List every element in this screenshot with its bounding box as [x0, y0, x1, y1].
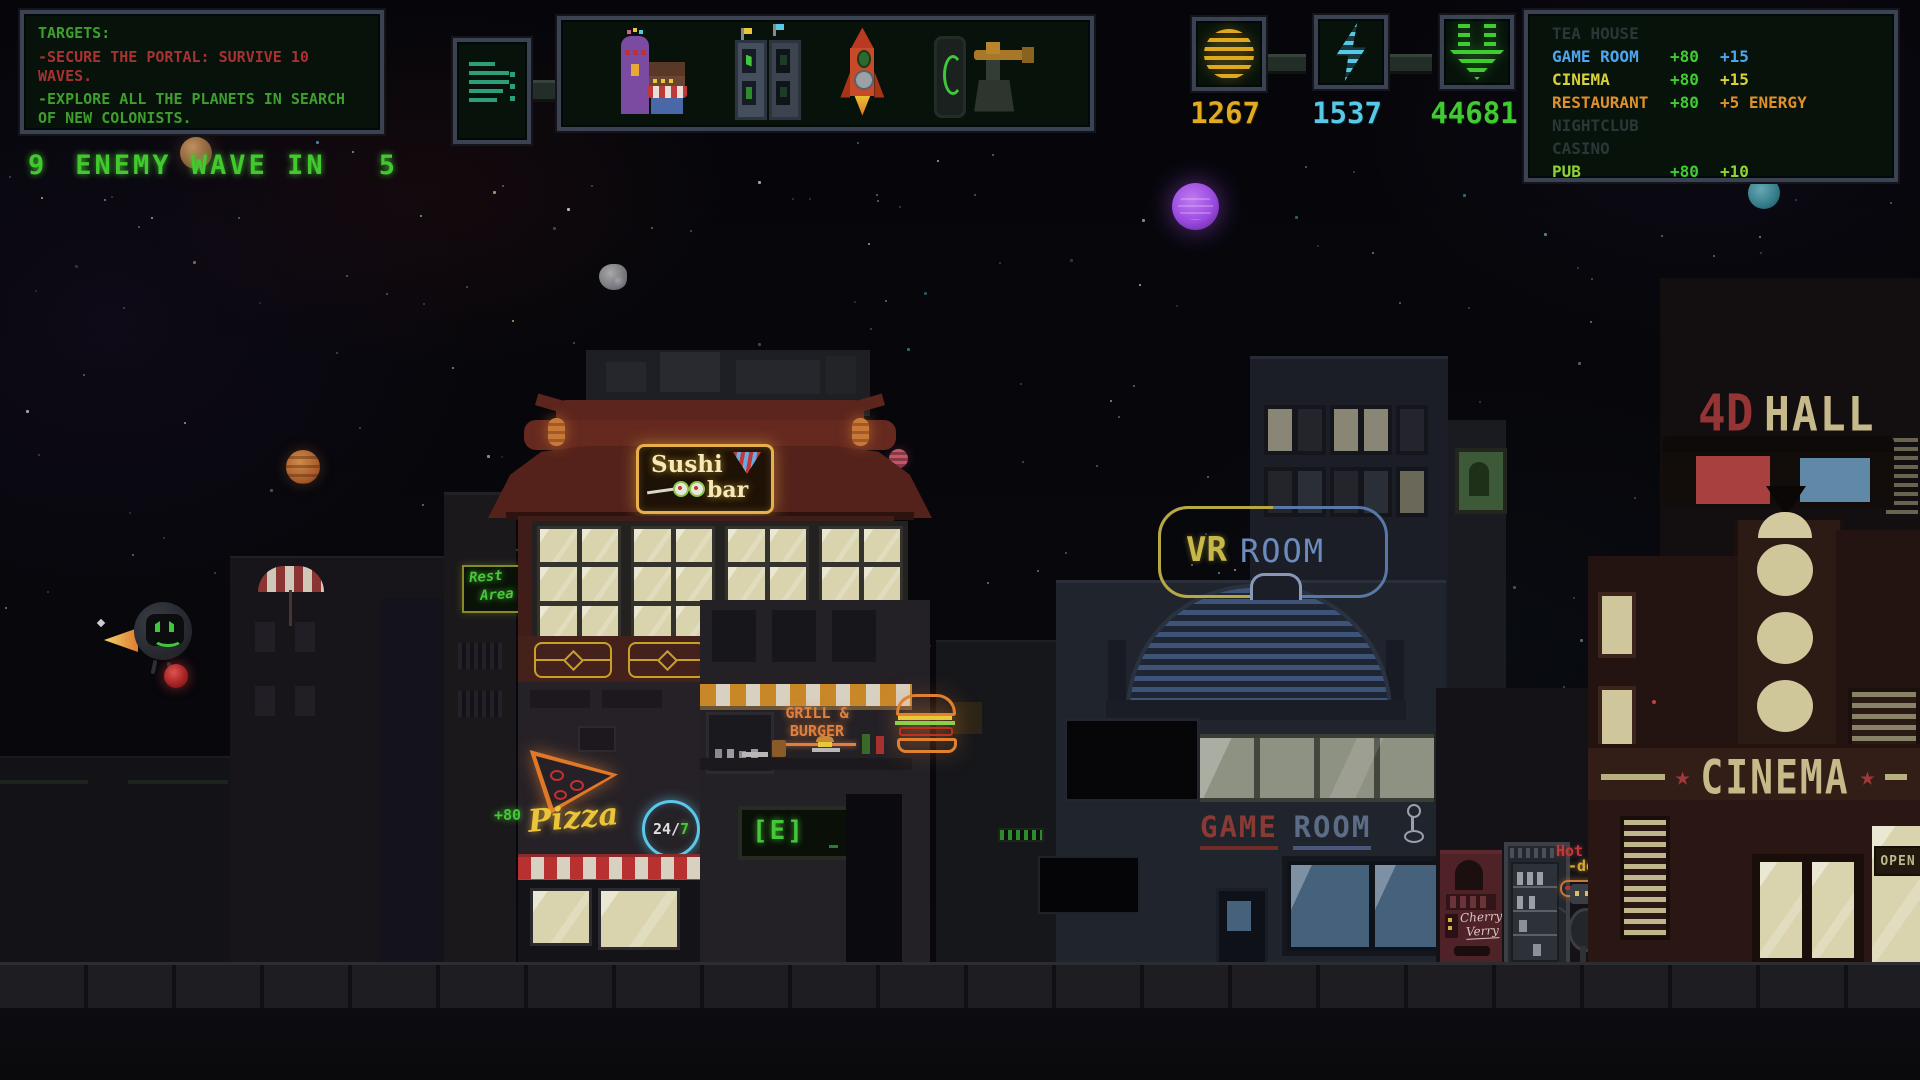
- game-room-sign: GAME ROOM: [1200, 810, 1430, 854]
- star: [870, 328, 872, 330]
- star: [591, 185, 593, 187]
- star: [1110, 400, 1112, 402]
- star: [857, 142, 859, 144]
- rest-area-line1: Rest: [468, 568, 503, 586]
- vr-sign-right: ROOM: [1240, 532, 1325, 570]
- mug: [772, 740, 786, 757]
- badge-24: 24/: [653, 820, 680, 838]
- star: [502, 185, 504, 187]
- pizza-storefront[interactable]: [518, 880, 702, 966]
- cinema-sign-text: CINEMA: [1700, 750, 1849, 805]
- sushi-bar-sign: Sushi bar: [636, 444, 774, 514]
- star: [792, 198, 794, 200]
- resource-bar: 1267 1537 44681: [1180, 0, 1540, 140]
- star: [924, 292, 927, 295]
- asteroid-chunk: [612, 276, 626, 288]
- star-icon: ★: [1860, 762, 1876, 792]
- star: [1022, 461, 1024, 463]
- energy-tile: [1314, 15, 1388, 89]
- star: [1513, 586, 1516, 589]
- star: [1353, 171, 1355, 173]
- game-room-storefront: [1282, 856, 1462, 956]
- star: [1372, 252, 1374, 254]
- star: [1070, 259, 1073, 262]
- cinema-lower-floor: OPEN: [1588, 800, 1920, 966]
- open-sign-text: OPEN: [1880, 854, 1915, 869]
- star: [1065, 552, 1067, 554]
- grill-burger-shop: GRILL & BURGER [E]: [700, 600, 930, 966]
- star: [163, 537, 165, 539]
- star: [885, 300, 887, 302]
- row-label: PUB: [1552, 162, 1581, 181]
- cinema-marquee: ★ CINEMA ★: [1588, 744, 1920, 806]
- star: [493, 191, 496, 194]
- wave-label: ENEMY WAVE IN: [75, 150, 378, 181]
- burger-bun: [816, 736, 834, 742]
- railing: [128, 780, 228, 784]
- paper-lantern: [548, 418, 565, 446]
- star: [1661, 235, 1663, 237]
- star: [151, 217, 153, 219]
- background-kiosk: [936, 640, 1056, 968]
- coins-value: 1267: [1180, 96, 1270, 130]
- star: [38, 454, 40, 456]
- star: [1577, 267, 1579, 269]
- build-menu-button[interactable]: [453, 38, 531, 144]
- build-menu-panel: TEA HOUSE GAME ROOM +80 +15 CINEMA +80 +…: [1524, 10, 1898, 182]
- income-value: 44681: [1426, 96, 1522, 130]
- star: [487, 455, 490, 458]
- star: [1295, 216, 1298, 219]
- star: [877, 200, 879, 202]
- badge-7: 7: [680, 820, 689, 838]
- blue-lens: [1800, 458, 1870, 502]
- interact-prompt: [E]: [752, 816, 805, 846]
- red-orb-pickup[interactable]: [164, 664, 188, 688]
- star: [336, 352, 338, 354]
- star: [567, 208, 570, 211]
- star: [690, 230, 692, 232]
- pizza-awning: [518, 854, 702, 883]
- row-label: RESTAURANT: [1552, 93, 1648, 112]
- row-bonus: +15: [1720, 70, 1749, 89]
- cinema-round-tower: [1734, 520, 1844, 770]
- star: [1795, 199, 1797, 201]
- build-row-nightclub[interactable]: NIGHTCLUB: [1528, 116, 1894, 139]
- star: [1544, 233, 1547, 236]
- wave-counter: 9 ENEMY WAVE IN 5: [28, 150, 398, 181]
- wave-count: 9: [28, 150, 47, 181]
- phone-turret-icon[interactable]: [928, 28, 1038, 120]
- objective-2: -EXPLORE ALL THE PLANETS IN SEARCH OF NE…: [38, 90, 366, 128]
- counter: [700, 758, 912, 770]
- vending-slot: [1454, 946, 1490, 956]
- row-bonus: +15: [1720, 47, 1749, 66]
- green-lit-window: [1455, 448, 1507, 514]
- vent: [458, 643, 502, 669]
- star: [512, 320, 514, 322]
- objective-1: -SECURE THE PORTAL: SURVIVE 10 WAVES.: [38, 48, 366, 86]
- joystick-icon: [1402, 804, 1422, 844]
- star: [1118, 416, 1120, 418]
- star: [1759, 236, 1761, 238]
- star: [5, 607, 7, 609]
- shop-door[interactable]: [846, 794, 902, 966]
- star: [422, 504, 424, 506]
- star: [41, 197, 43, 199]
- burger-neon-sign: [894, 694, 956, 752]
- star: [1207, 476, 1209, 478]
- open-24-7-badge: 24/7: [642, 800, 700, 858]
- star: [1713, 255, 1715, 257]
- vending-keypad[interactable]: [1445, 914, 1458, 938]
- star: [259, 302, 261, 304]
- energy-value: 1537: [1302, 96, 1392, 130]
- shop-buildings-icon[interactable]: [613, 28, 689, 120]
- star: [809, 198, 811, 200]
- star: [1463, 194, 1466, 197]
- targets-panel: TARGETS: -SECURE THE PORTAL: SURVIVE 10 …: [20, 10, 384, 134]
- billboard-screen: [1064, 718, 1200, 802]
- star: [1468, 307, 1470, 309]
- row-label: CINEMA: [1552, 70, 1610, 89]
- game-sign-right: ROOM: [1293, 810, 1371, 850]
- star: [1133, 385, 1135, 387]
- star: [1591, 278, 1593, 280]
- led-ticker: [998, 828, 1044, 842]
- star: [1890, 202, 1892, 204]
- road: [0, 1008, 1920, 1080]
- rest-area-tower: Rest Area: [444, 492, 516, 969]
- star: [316, 141, 319, 144]
- star: [1634, 497, 1636, 499]
- build-row-tea-house[interactable]: TEA HOUSE: [1528, 24, 1894, 47]
- star: [1317, 245, 1319, 247]
- blinds-window: [1620, 816, 1670, 940]
- row-bonus: +5 ENERGY: [1720, 93, 1807, 112]
- open-sign: OPEN: [1874, 846, 1920, 876]
- star: [111, 196, 113, 198]
- background-building-far-left: [0, 756, 232, 968]
- sushi-sign-line1: Sushi: [651, 451, 723, 478]
- star: [386, 293, 388, 295]
- star: [83, 374, 85, 376]
- sidewalk: [0, 962, 1920, 1011]
- star: [138, 226, 140, 228]
- income-tile: [1440, 15, 1514, 89]
- download-arrows-icon: [1450, 24, 1504, 80]
- star: [346, 275, 348, 277]
- star: [193, 261, 196, 264]
- star: [1578, 362, 1581, 365]
- row-cost: +80: [1670, 47, 1699, 66]
- star: [1139, 284, 1141, 286]
- star: [1096, 465, 1098, 467]
- star: [758, 181, 761, 184]
- cinema-entrance[interactable]: [1752, 854, 1864, 966]
- hall-4d-name: HALL: [1764, 388, 1876, 443]
- game-viewport: Rest Area Sushi bar: [0, 0, 1920, 1080]
- star: [359, 427, 361, 429]
- plate: [812, 748, 840, 752]
- rocket-icon[interactable]: [840, 28, 884, 120]
- star: [420, 215, 422, 217]
- star: [47, 591, 49, 593]
- build-toolbar: [557, 16, 1094, 131]
- build-row-pub[interactable]: PUB +80 +10: [1528, 162, 1894, 185]
- cherry-vending-machine[interactable]: Cherry Verry: [1440, 850, 1502, 970]
- paper-lantern: [852, 418, 869, 446]
- dome-base: [1106, 700, 1406, 720]
- star: [466, 286, 468, 288]
- game-room-door[interactable]: [1216, 888, 1268, 972]
- row-label: TEA HOUSE: [1552, 24, 1639, 43]
- sushi-sign-line2: bar: [707, 477, 748, 503]
- star: [868, 243, 870, 245]
- vent: [458, 691, 502, 717]
- star: [423, 303, 425, 305]
- star: [651, 227, 653, 229]
- small-screen: [1038, 856, 1140, 914]
- star: [1399, 302, 1401, 304]
- star: [1573, 597, 1575, 599]
- vr-room-sign: VR ROOM: [1158, 506, 1388, 598]
- star: [238, 217, 240, 219]
- row-cost: +80: [1670, 93, 1699, 112]
- star: [907, 348, 910, 351]
- hall-4d-prefix: 4D: [1698, 383, 1753, 442]
- row-label: NIGHTCLUB: [1552, 116, 1639, 135]
- grill-burger-sign: GRILL & BURGER: [774, 704, 860, 750]
- star: [1479, 401, 1481, 403]
- hooded-figure: [1469, 462, 1489, 496]
- grill-line1: GRILL &: [774, 704, 860, 722]
- star: [270, 489, 273, 492]
- star: [899, 206, 901, 208]
- interact-led-board: [E]: [738, 806, 850, 860]
- planet-orange[interactable]: [286, 450, 320, 484]
- star: [1142, 219, 1145, 222]
- umbrella-pole: [289, 590, 292, 626]
- game-sign-left: GAME: [1200, 810, 1278, 850]
- sushi-roll-icon: [689, 481, 705, 497]
- star: [123, 307, 125, 309]
- coin-icon: [1204, 29, 1254, 79]
- machines-icon[interactable]: [733, 28, 797, 120]
- cherry-sign-line2: Verry: [1466, 923, 1500, 940]
- star-icon: ★: [1675, 762, 1691, 792]
- rest-area-line2: Area: [479, 586, 514, 604]
- hud-pipe: [527, 80, 559, 102]
- row-label: CASINO: [1552, 139, 1610, 158]
- fan-icon: [733, 452, 761, 474]
- vr-sign-left: VR: [1186, 530, 1227, 570]
- ketchup-bottle: [876, 736, 884, 754]
- coins-tile: [1192, 17, 1266, 91]
- star: [452, 367, 454, 369]
- star: [974, 194, 976, 196]
- star: [1305, 166, 1307, 168]
- star: [992, 154, 994, 156]
- star: [876, 194, 878, 196]
- star: [1176, 305, 1178, 307]
- build-row-game-room[interactable]: GAME ROOM +80 +15: [1528, 47, 1894, 70]
- star: [35, 290, 37, 292]
- jetpack-flame: [104, 628, 138, 652]
- star: [214, 572, 216, 574]
- red-lens: [1696, 456, 1770, 504]
- targets-title: TARGETS:: [38, 24, 366, 42]
- star: [1760, 252, 1762, 254]
- star: [987, 582, 989, 584]
- row-cost: +80: [1670, 162, 1699, 181]
- star: [573, 342, 575, 344]
- goggles-nose-notch: [1250, 573, 1302, 600]
- star: [1020, 383, 1022, 385]
- star: [937, 160, 939, 162]
- 3d-glasses-sign: [1662, 436, 1894, 520]
- star: [1580, 639, 1583, 642]
- menu-lines-icon: [469, 62, 519, 122]
- star: [129, 512, 131, 514]
- sushi-roll-icon: [673, 481, 689, 497]
- star: [1590, 321, 1592, 323]
- robot-face-screen: [146, 614, 184, 646]
- star: [9, 176, 11, 178]
- star: [184, 422, 186, 424]
- rest-area-sign: Rest Area: [462, 565, 520, 613]
- star: [999, 262, 1001, 264]
- railing: [0, 780, 88, 784]
- star: [501, 456, 503, 458]
- player-character: [104, 602, 214, 702]
- star: [75, 265, 78, 268]
- pizza-bonus-float: +80: [494, 806, 521, 824]
- star: [758, 343, 761, 346]
- lightning-icon: [1329, 23, 1373, 81]
- planet-purple[interactable]: [1172, 183, 1219, 230]
- star: [1037, 570, 1039, 572]
- lit-window-strip: [1200, 734, 1434, 802]
- plate: [742, 752, 768, 757]
- star: [553, 227, 556, 230]
- row-label: GAME ROOM: [1552, 47, 1639, 66]
- background-building-left: [230, 556, 478, 968]
- build-row-cinema[interactable]: CINEMA +80 +15: [1528, 70, 1894, 93]
- build-row-casino[interactable]: CASINO: [1528, 139, 1894, 162]
- build-row-restaurant[interactable]: RESTAURANT +80 +5 ENERGY: [1528, 93, 1894, 116]
- wave-timer: 5: [379, 150, 398, 181]
- row-bonus: +10: [1720, 162, 1749, 181]
- burger-cheese: [818, 742, 832, 747]
- star: [26, 410, 29, 413]
- star: [854, 301, 856, 303]
- star: [132, 554, 134, 556]
- star: [104, 199, 106, 201]
- green-bottle: [862, 734, 870, 754]
- row-cost: +80: [1670, 70, 1699, 89]
